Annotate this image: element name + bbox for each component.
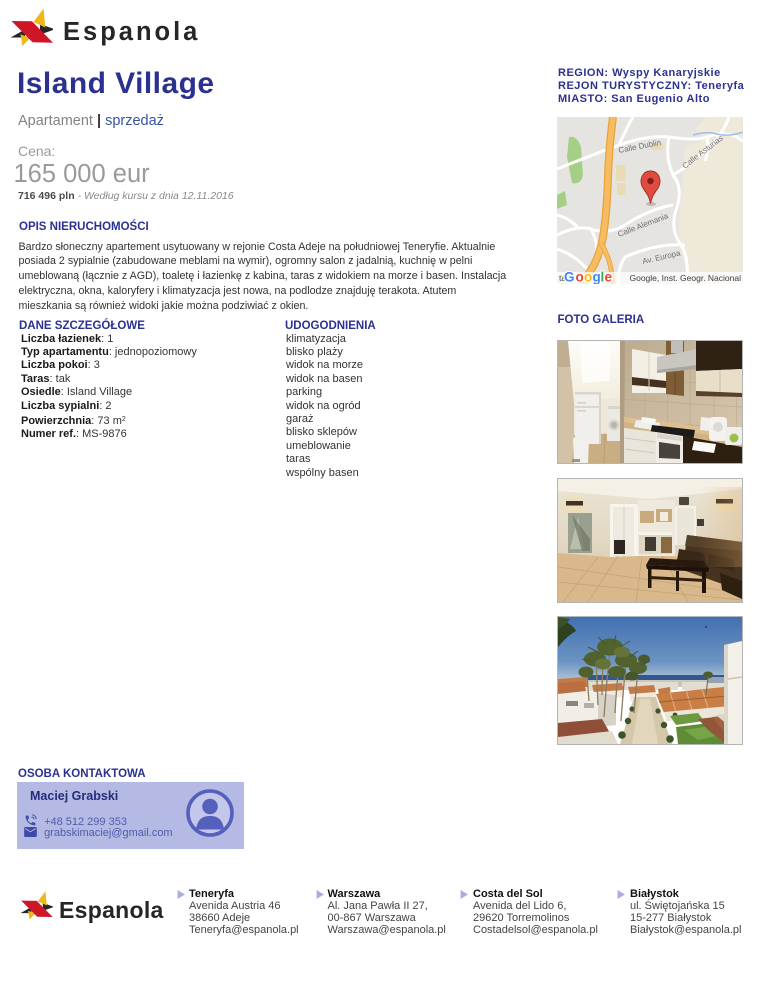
svg-text:g: g [593,270,601,285]
svg-text:o: o [584,270,592,285]
svg-text:G: G [564,270,575,285]
svg-text:Google, Inst. Geogr. Nacional: Google, Inst. Geogr. Nacional [629,273,741,283]
svg-text:e: e [605,270,613,285]
svg-text:o: o [576,270,584,285]
